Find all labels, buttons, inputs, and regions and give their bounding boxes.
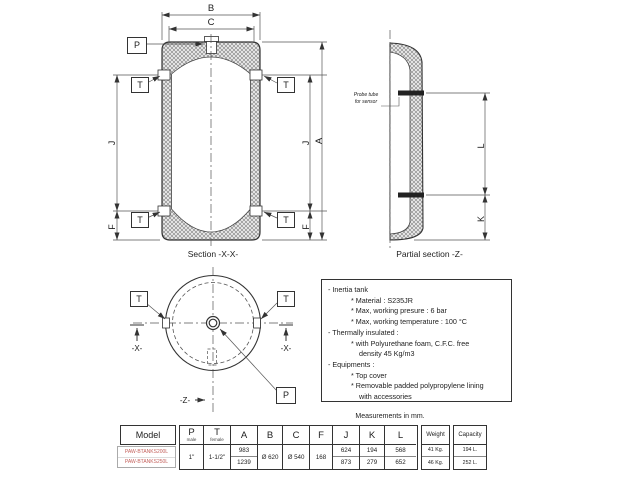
column-J: J 624 873 [333, 426, 360, 469]
column-label: A [241, 431, 247, 440]
column-sublabel: female [210, 437, 224, 442]
model-rows: PAW-BTANKS200L PAW-BTANKS250L [117, 446, 176, 468]
cell-value: Ø 540 [283, 445, 309, 469]
weight-box: Weight 41 Kg. 46 Kg. [421, 425, 450, 470]
top-port-neck [207, 42, 217, 54]
column-header: C [283, 426, 309, 445]
model-header: Model [120, 425, 176, 445]
dim-label-K: K [476, 216, 486, 222]
side-port-lower-left [158, 206, 170, 216]
top-port-cap [205, 37, 219, 42]
port-label-T-topview-left: T [130, 291, 148, 307]
model-name-row: PAW-BTANKS200L [118, 447, 175, 458]
cell-value: 194 [360, 445, 384, 457]
section-z-marker: -Z- [180, 396, 205, 405]
marker-z-label: -Z- [180, 396, 191, 405]
column-A: A 983 1239 [231, 426, 258, 469]
marker-x-right: -X- [281, 344, 292, 353]
column-label: F [318, 431, 324, 440]
spec-line: * with Polyurethane foam, C.F.C. free [326, 339, 507, 350]
probe-tube-lower [398, 193, 424, 198]
column-C: C Ø 540 [283, 426, 310, 469]
port-label-T-lower-right: T [277, 212, 295, 228]
measurements-note: Measurements in mm. [330, 413, 450, 420]
spec-line: - Inertia tank [326, 285, 507, 296]
column-header: A [231, 426, 257, 445]
cell-value: 1-1/2" [204, 445, 230, 469]
column-label: L [398, 431, 403, 440]
partial-z-drawing: Probe tube for sensor L K [354, 30, 490, 248]
spec-line: * Top cover [326, 371, 507, 382]
cell-value: 568 [385, 445, 416, 457]
dim-label-J-left: J [107, 141, 117, 146]
column-L: L 568 652 [385, 426, 416, 469]
dim-label-L: L [476, 143, 486, 148]
column-label: K [369, 431, 375, 440]
technical-drawing-svg: B C J F J F A Probe tube for sensor [0, 0, 641, 480]
column-header: K [360, 426, 384, 445]
dim-label-B: B [208, 3, 214, 14]
column-label: J [344, 431, 349, 440]
spec-line: with accessories [326, 392, 507, 403]
cell-value: 873 [333, 457, 359, 470]
section-xx-caption: Section -X-X- [158, 249, 268, 259]
partial-z-caption: Partial section -Z- [372, 249, 487, 259]
spec-line: - Equipments : [326, 360, 507, 371]
column-label: T [214, 428, 220, 437]
cell-value: 983 [231, 445, 257, 457]
wall-cavity [390, 52, 410, 234]
dim-label-C: C [208, 17, 215, 28]
marker-x-left: -X- [132, 344, 143, 353]
port-label-T-upper-left: T [131, 77, 149, 93]
column-header: L [385, 426, 416, 445]
weight-header: Weight [422, 426, 449, 445]
column-P: P male 1" [180, 426, 204, 469]
spec-line: * Removable padded polypropylene lining [326, 381, 507, 392]
dim-label-J-right: J [301, 141, 311, 146]
column-B: B Ø 620 [258, 426, 283, 469]
column-F: F 168 [310, 426, 333, 469]
measurements-table: P male 1" T female 1-1/2" A 983 1239 B Ø… [179, 425, 418, 470]
probe-tube-upper [398, 91, 424, 96]
side-port-upper-left [158, 70, 170, 80]
cell-value: 279 [360, 457, 384, 470]
dim-label-F-right: F [301, 224, 311, 230]
weight-value: 46 Kg. [422, 457, 449, 470]
column-T: T female 1-1/2" [204, 426, 231, 469]
spec-line: * Max, working temperature : 100 °C [326, 317, 507, 328]
port-label-T-topview-right: T [277, 291, 295, 307]
probe-note-line1: Probe tube [354, 92, 379, 98]
dim-label-A: A [314, 137, 325, 144]
column-header: F [310, 426, 332, 445]
cell-value: 624 [333, 445, 359, 457]
cell-value: 1239 [231, 457, 257, 470]
side-port-upper-right [250, 70, 262, 80]
port-label-T-upper-right: T [277, 77, 295, 93]
capacity-box: Capacity 194 L. 252 L. [453, 425, 487, 470]
column-label: P [188, 428, 194, 437]
spec-line: density 45 Kg/m3 [326, 349, 507, 360]
spec-line: * Max, working presure : 6 bar [326, 306, 507, 317]
port-label-T-lower-left: T [131, 212, 149, 228]
cell-value: 652 [385, 457, 416, 470]
dim-label-F-left: F [107, 224, 117, 230]
top-view-port-left [163, 318, 170, 328]
column-label: B [267, 431, 273, 440]
port-label-P-topview: P [276, 387, 296, 404]
cell-value: Ø 620 [258, 445, 282, 469]
column-sublabel: male [187, 437, 197, 442]
weight-value: 41 Kg. [422, 445, 449, 457]
top-view-drawing: -X- -X- -Z- [130, 267, 293, 413]
center-port-inner [209, 319, 217, 327]
cell-value: 1" [180, 445, 203, 469]
spec-box: - Inertia tank * Material : S235JR * Max… [321, 279, 512, 402]
column-header: J [333, 426, 359, 445]
side-port-lower-right [250, 206, 262, 216]
drawing-canvas: B C J F J F A Probe tube for sensor [0, 0, 641, 480]
port-label-P-section: P [127, 37, 147, 54]
spec-line: - Thermally insulated : [326, 328, 507, 339]
model-name-row: PAW-BTANKS250L [118, 458, 175, 468]
column-K: K 194 279 [360, 426, 385, 469]
capacity-value: 252 L. [454, 457, 486, 470]
column-header: P male [180, 426, 203, 445]
column-label: C [293, 431, 300, 440]
column-header: B [258, 426, 282, 445]
probe-note-line2: for sensor [355, 99, 378, 105]
capacity-value: 194 L. [454, 445, 486, 457]
cell-value: 168 [310, 445, 332, 469]
column-header: T female [204, 426, 230, 445]
capacity-header: Capacity [454, 426, 486, 445]
spec-line: * Material : S235JR [326, 296, 507, 307]
top-view-port-right [254, 318, 261, 328]
